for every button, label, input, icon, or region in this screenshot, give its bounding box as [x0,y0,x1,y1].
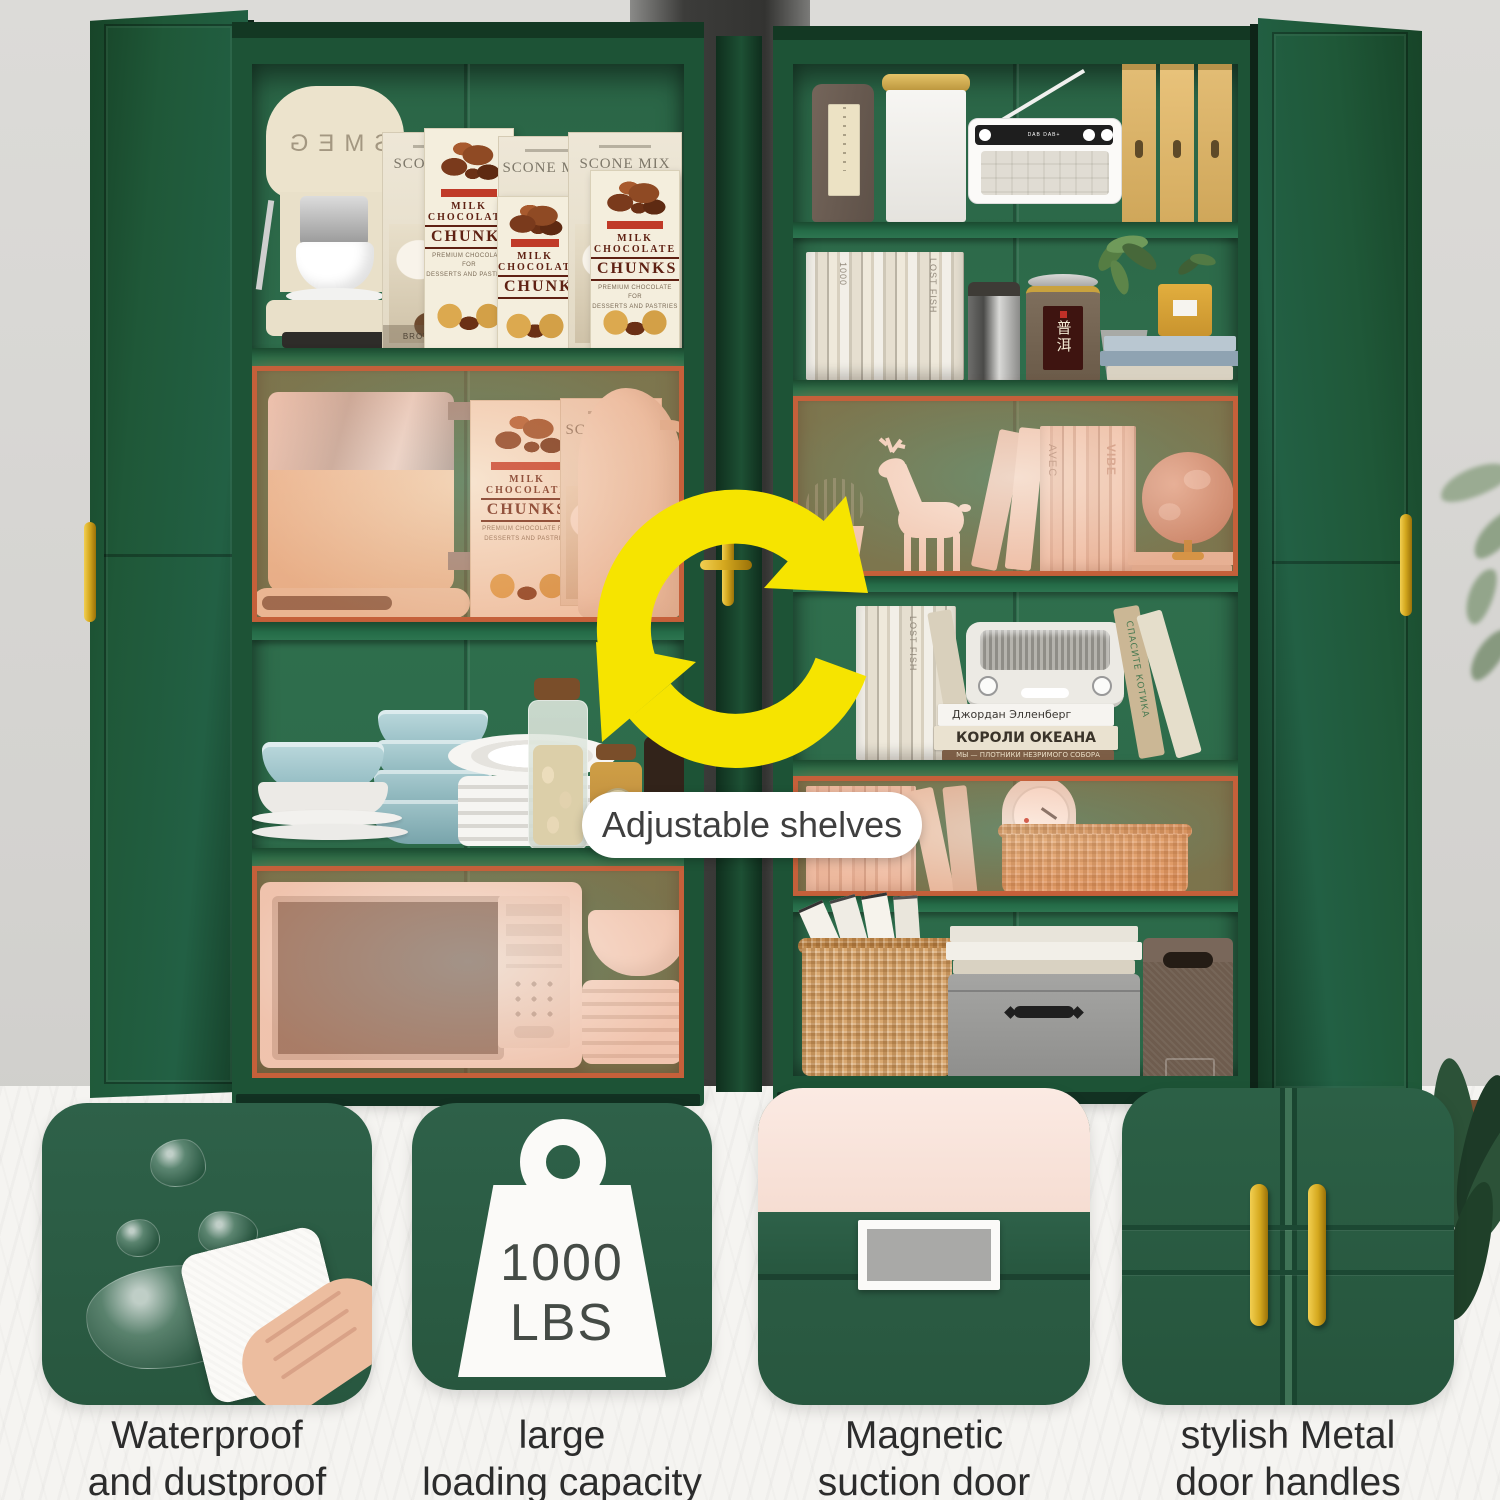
feature-label-handles: stylish Metal door handles [1122,1412,1454,1500]
file-box-slot [1173,140,1181,158]
left-cabinet-top-face [232,22,704,38]
russian-book-title: КОРОЛИ ОКЕАНА [934,726,1118,750]
books-stack [1100,351,1238,366]
shelf-board [793,222,1238,238]
chunks-title-2: CHOCOLATE [498,262,572,273]
books-stack [950,926,1138,942]
plate [252,824,408,840]
feature-label-waterproof: Waterproof and dustproof [42,1412,372,1500]
russian-book-author: Джордан Элленберг [938,704,1114,726]
feature-label-magnetic: Magnetic suction door [758,1412,1090,1500]
water-drop-icon [150,1139,206,1187]
radio-knob [979,129,991,141]
feature-tile-loading: 1000 LBS [412,1103,712,1390]
feature-tile-magnetic [758,1088,1090,1405]
chocolate-cluster-art [504,201,566,237]
chunks-title-2: CHOCOLATE [591,244,679,255]
right-cabinet-open-door [1258,18,1422,1104]
right-cabinet-top-face [773,26,1258,40]
feature-label-line: suction door [758,1459,1090,1500]
brand-tag [441,189,497,197]
swap-arrows-icon [550,462,922,794]
book-spine-label: 1000 [838,262,848,352]
feature-label-loading: large loading capacity [397,1412,727,1500]
shelf-board [793,896,1238,912]
sage-leaf-icon [1463,623,1500,686]
sage-leaf-icon [1466,501,1500,565]
radio-handle-slot [1021,688,1069,698]
chocolate-chunks-box: MILK CHOCOLATE CHUNKS [497,196,573,350]
books-stack [1107,366,1233,380]
russian-book: КОРОЛИ ОКЕАНА [934,726,1118,750]
chunks-title-1: MILK [591,233,679,244]
books-stack [946,942,1142,960]
candle-jar [1158,284,1212,336]
brand-tag [607,221,663,229]
chocolate-cluster-art [432,134,506,187]
book-spine-label: LOST FISH [928,258,938,368]
wooden-file-box [1160,64,1194,228]
radio-knob [1092,676,1112,696]
gray-metal-box [948,974,1140,1076]
radio-knob [1083,129,1095,141]
tea-tube [812,84,874,222]
steel-canister [968,282,1020,394]
shelf-board [793,380,1238,396]
weight-value: 1000 [458,1233,666,1293]
left-door-handle [84,522,96,622]
candle-label [1173,300,1197,316]
wooden-file-box [1198,64,1232,228]
sage-leaf-icon [1460,565,1500,628]
cookies-art [498,308,572,344]
file-box-slot [1135,140,1143,158]
weight-unit: LBS [458,1293,666,1353]
file-box-slot [1211,140,1219,158]
feature-label-line: stylish Metal [1122,1412,1454,1459]
russian-book: Джордан Элленберг [938,704,1114,726]
adjustable-shelves-text: Adjustable shelves [602,804,902,845]
books-stack [953,960,1135,974]
coffee-machine-group [300,196,368,246]
brand-tag [511,239,558,247]
shelf-board [252,348,684,366]
wicker-basket [802,948,952,1076]
puer-label: 普洱 [1043,306,1083,370]
door-panel-divider [1272,561,1408,564]
feature-label-line: loading capacity [397,1459,727,1500]
radio-mesh [980,630,1110,670]
feature-tile-handles [1122,1088,1454,1405]
door-seam [1292,1088,1297,1405]
door-handle-gold [1250,1184,1268,1326]
door-panel-divider [104,554,234,557]
white-canister [886,90,966,222]
cookies-art [591,301,679,344]
door-seam-gap [1285,1088,1292,1405]
box-brand-rule [599,145,651,148]
puer-tea-canister: 普洱 [1026,286,1100,386]
magnet-strip [858,1220,1000,1290]
door-inner-pink-panel [758,1088,1090,1212]
chunks-title-1: MILK [498,251,572,262]
door-handle-gold [1308,1184,1326,1326]
steam-wand [256,200,274,290]
radio-speaker-grid [981,151,1109,195]
feature-tile-waterproof [42,1103,372,1405]
adjustable-shelves-label: Adjustable shelves [582,792,922,858]
feature-label-line: large [397,1412,727,1459]
right-door-handle [1400,514,1412,616]
adjustable-shelf-highlight [252,866,684,1078]
chocolate-chunks-box: MILK CHOCOLATE CHUNKS PREMIUM CHOCOLATE … [590,170,680,350]
water-drop-icon [116,1219,160,1257]
chunks-title-3: CHUNKS [498,275,573,299]
door-groove [1122,1270,1454,1275]
red-seal [1060,311,1067,318]
feature-label-line: Magnetic [758,1412,1090,1459]
chocolate-cluster-art [598,176,672,219]
feature-label-line: Waterproof [42,1412,372,1459]
tea-tube-label [828,104,860,196]
radio-knob [1101,129,1113,141]
box-handle [1014,1006,1074,1018]
feature-label-line: door handles [1122,1459,1454,1500]
box-brand-rule [525,149,570,152]
books-row [806,252,964,380]
books-stack [1104,336,1236,351]
chunks-title-3: CHUNKS [591,257,680,281]
wooden-file-box [1122,64,1156,228]
plant-leaf-icon [1107,258,1132,297]
puer-label-text: 普洱 [1053,320,1074,354]
product-scene: SMEG SCONE MIX BROWN SUGAR MILK CHOCOLAT… [0,0,1500,1500]
vintage-radio [966,622,1124,708]
weight-icon-body: 1000 LBS [458,1185,666,1377]
cube-handle-hole [1163,952,1213,968]
coffee-machine-base [282,332,388,348]
sage-leaf-icon [1435,455,1500,509]
box-lid-line [948,990,1140,992]
feature-label-line: and dustproof [42,1459,372,1500]
door-groove [1122,1225,1454,1230]
radio: DAB DAB+ [968,118,1122,204]
left-cabinet-open-door [90,10,248,1098]
cube-label [1165,1058,1215,1076]
fabric-storage-cube [1143,938,1233,1076]
radio-knob [978,676,998,696]
